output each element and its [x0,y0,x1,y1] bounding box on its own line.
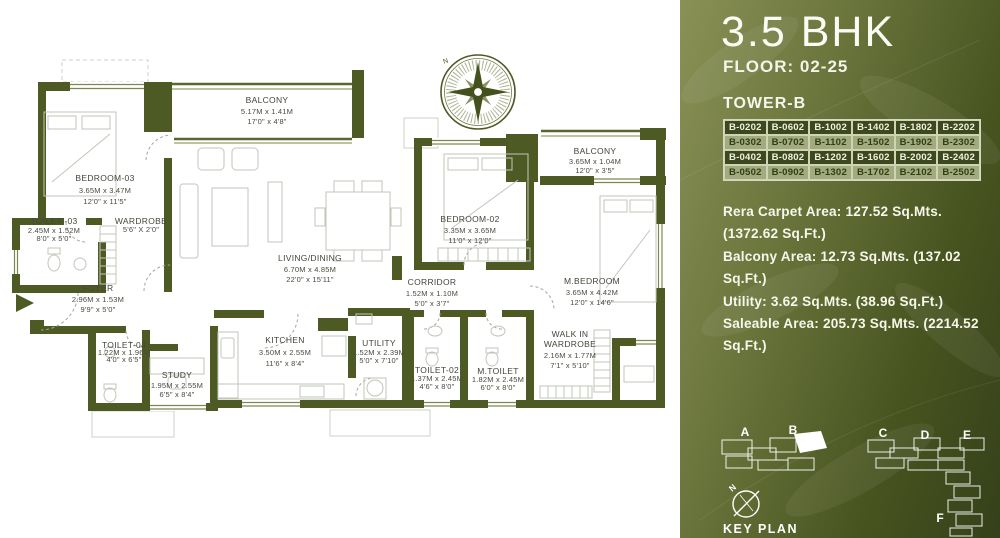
svg-text:17'0" x 4'8": 17'0" x 4'8" [247,117,286,126]
key-plan-label: KEY PLAN [723,522,798,536]
svg-text:6'0" x 8'0": 6'0" x 8'0" [481,383,516,392]
svg-text:FOYER: FOYER [83,283,114,293]
svg-text:9'9" x 5'0": 9'9" x 5'0" [81,305,116,314]
building-d-label: D [921,428,930,442]
floor-plan: N BALCONY 5.17M x 1.41M 17'0" x 4'8" BED… [0,0,680,538]
key-plan: A B C D E F N KEY PLAN [680,0,1000,538]
svg-text:11'6" x 8'4": 11'6" x 8'4" [266,359,305,368]
floor-plan-page: N BALCONY 5.17M x 1.41M 17'0" x 4'8" BED… [0,0,1000,538]
svg-text:LIVING/DINING: LIVING/DINING [278,253,342,263]
room-label-kitchen: KITCHEN 3.50M x 2.55M 11'6" x 8'4" [259,335,311,368]
svg-text:11'0" x 12'0": 11'0" x 12'0" [448,236,491,245]
svg-text:7'1" x 5'10": 7'1" x 5'10" [550,361,589,370]
svg-text:BALCONY: BALCONY [574,146,617,156]
svg-text:3.65M x 1.04M: 3.65M x 1.04M [569,157,621,166]
room-label-balcony-right: BALCONY 3.65M x 1.04M 12'0" x 3'5" [569,146,621,175]
svg-text:5'0" x 7'10": 5'0" x 7'10" [359,356,398,365]
room-label-walkin-wardrobe: WALK IN WARDROBE 2.16M x 1.77M 7'1" x 5'… [544,329,596,370]
svg-text:1.95M x 2.55M: 1.95M x 2.55M [151,381,203,390]
svg-text:CORRIDOR: CORRIDOR [408,277,457,287]
svg-text:22'0" x 15'11": 22'0" x 15'11" [286,275,334,284]
room-label-corridor: CORRIDOR 1.52M x 1.10M 5'0" x 3'7" [406,277,458,308]
info-panel: 3.5 BHK FLOOR: 02-25 TOWER-B B-0202 B-06… [680,0,1000,538]
key-plan-compass [733,491,759,517]
compass-north-label: N [442,58,449,66]
building-e-label: E [963,428,971,442]
svg-text:8'0" x 5'0": 8'0" x 5'0" [37,234,72,243]
svg-text:TOILET -03: TOILET -03 [30,216,77,226]
svg-text:12'0" x 14'6": 12'0" x 14'6" [570,298,614,307]
room-label-bedroom-03: BEDROOM-03 3.65M x 3.47M 12'0" x 11'5" [75,173,134,206]
svg-text:UTILITY: UTILITY [362,338,396,348]
svg-text:5.17M x 1.41M: 5.17M x 1.41M [241,107,293,116]
room-label-wardrobe: WARDROBE 5'6" X 2'0" [115,216,167,234]
svg-text:KITCHEN: KITCHEN [265,335,304,345]
key-plan-highlight-tower-b [794,431,827,453]
building-c-label: C [879,426,888,440]
room-label-m-bedroom: M.BEDROOM 3.65M x 4.42M 12'0" x 14'6" [564,276,620,307]
svg-text:12'0" x 11'5": 12'0" x 11'5" [83,197,126,206]
svg-text:M.BEDROOM: M.BEDROOM [564,276,620,286]
room-label-m-toilet: M.TOILET 1.82M x 2.45M 6'0" x 8'0" [472,366,524,392]
room-label-bedroom-02: BEDROOM-02 3.35M x 3.65M 11'0" x 12'0" [440,214,499,245]
room-label-balcony-top: BALCONY 5.17M x 1.41M 17'0" x 4'8" [241,95,293,126]
svg-text:6'5" x 8'4": 6'5" x 8'4" [160,390,195,399]
room-label-toilet-02: TOILET-02 1.37M x 2.45M 4'6" x 8'0" [411,365,463,391]
room-label-living-dining: LIVING/DINING 6.70M x 4.85M 22'0" x 15'1… [278,253,342,284]
svg-text:3.50M x 2.55M: 3.50M x 2.55M [259,348,311,357]
svg-text:STUDY: STUDY [162,370,192,380]
svg-text:BEDROOM-02: BEDROOM-02 [440,214,499,224]
svg-text:3.65M x 3.47M: 3.65M x 3.47M [79,186,131,195]
room-label-toilet-03: TOILET -03 2.45M x 1.52M 8'0" x 5'0" [28,216,80,243]
svg-text:12'0" x 3'5": 12'0" x 3'5" [575,166,614,175]
room-label-utility: UTILITY 1.52M x 2.39M 5'0" x 7'10" [353,338,405,365]
svg-text:4'0" x 6'5": 4'0" x 6'5" [107,355,142,364]
svg-text:BALCONY: BALCONY [246,95,289,105]
entry-arrow [16,294,34,312]
svg-text:2.16M x 1.77M: 2.16M x 1.77M [544,351,596,360]
svg-text:5'6" X 2'0": 5'6" X 2'0" [123,225,159,234]
svg-text:WARDROBE: WARDROBE [544,339,596,349]
svg-text:3.35M x 3.65M: 3.35M x 3.65M [444,226,496,235]
building-a-label: A [741,425,750,439]
building-b-label: B [789,423,798,437]
building-f-label: F [936,511,943,525]
svg-text:2.96M x 1.53M: 2.96M x 1.53M [72,295,124,304]
key-plan-north-label: N [727,482,738,494]
svg-text:3.65M x 4.42M: 3.65M x 4.42M [566,288,618,297]
svg-text:1.52M x 1.10M: 1.52M x 1.10M [406,289,458,298]
svg-text:5'0" x 3'7": 5'0" x 3'7" [415,299,450,308]
svg-text:BEDROOM-03: BEDROOM-03 [75,173,134,183]
svg-text:6.70M x 4.85M: 6.70M x 4.85M [284,265,336,274]
svg-text:4'6" x 8'0": 4'6" x 8'0" [420,382,455,391]
svg-text:WALK IN: WALK IN [552,329,589,339]
compass-rose: N [441,55,515,129]
